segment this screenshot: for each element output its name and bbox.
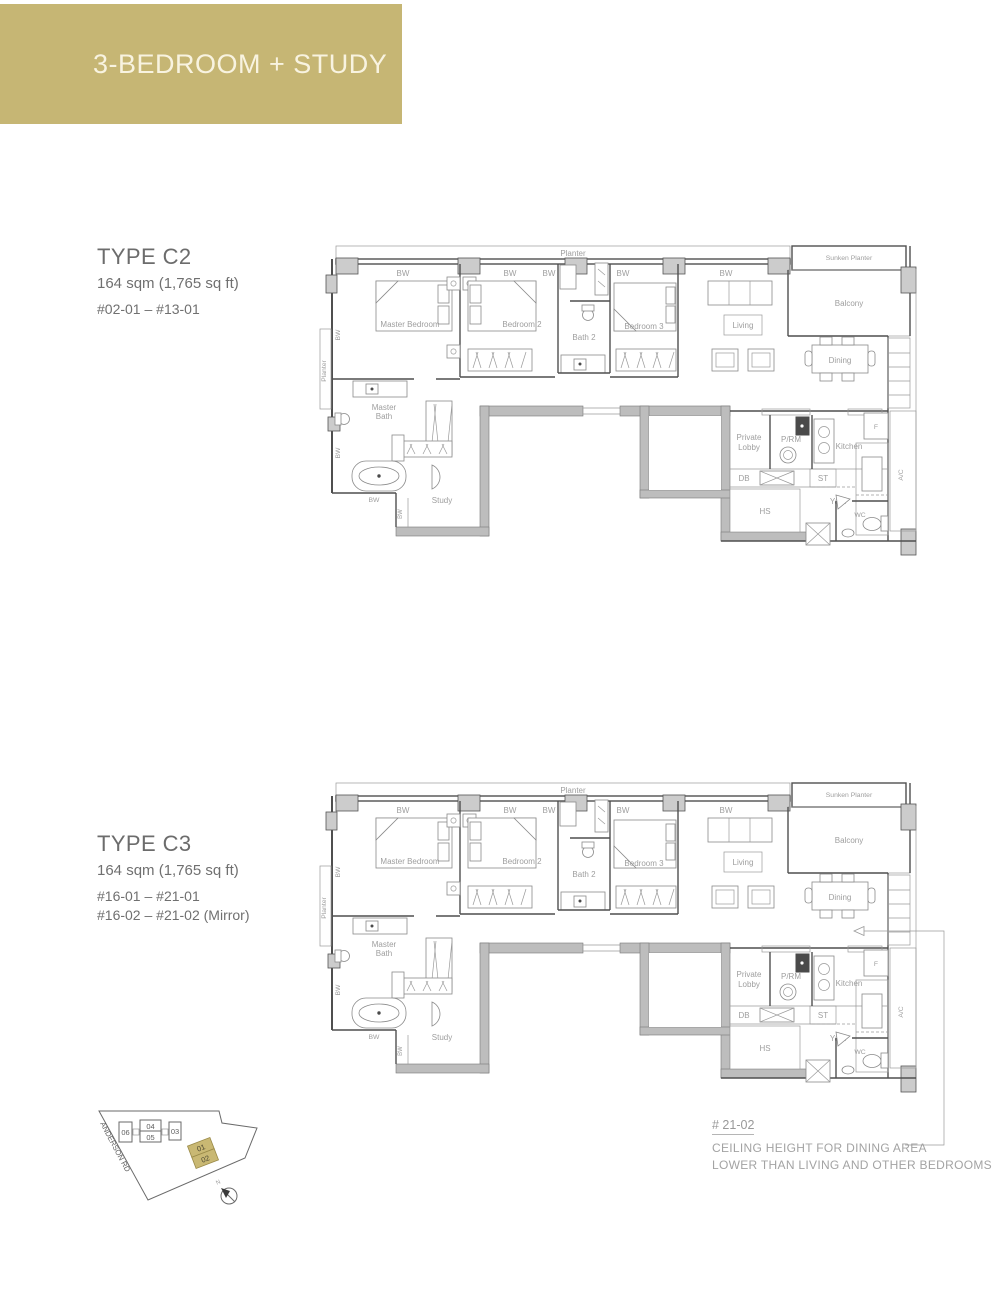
c2-label-bw-top-1: BW bbox=[397, 269, 410, 278]
type-c3-units-1: #16-01 – #21-01 bbox=[97, 888, 250, 904]
c3-column-top-5 bbox=[768, 795, 790, 811]
c2-wc-door bbox=[836, 495, 850, 509]
c2-window-band bbox=[888, 338, 910, 408]
floorplan-type-c3: PlanterBWBWBWBWBWSunken PlanterBalconyPl… bbox=[318, 780, 945, 1107]
keyplan-connector bbox=[133, 1129, 139, 1135]
c3-shape bbox=[868, 888, 875, 903]
c3-label-bw-top-1: BW bbox=[397, 806, 410, 815]
c2-label-bedroom-3: Bedroom 3 bbox=[624, 322, 664, 331]
c2-shape bbox=[666, 287, 675, 304]
c2-label-master-bath-2: Bath bbox=[376, 412, 392, 421]
c2-core-wall bbox=[396, 527, 489, 536]
c2-shape bbox=[447, 345, 460, 358]
c3-shape bbox=[595, 800, 608, 832]
c2-fixture bbox=[579, 363, 581, 365]
c3-label-st: ST bbox=[818, 1011, 828, 1020]
c2-shape bbox=[805, 351, 812, 366]
c2-shape bbox=[820, 337, 832, 345]
keyplan-label-04: 04 bbox=[146, 1122, 154, 1131]
c3-shape bbox=[438, 843, 449, 861]
c3-label-bw-top-4: BW bbox=[617, 806, 630, 815]
c2-shape bbox=[470, 285, 481, 303]
c3-shape bbox=[862, 994, 882, 1028]
c3-shape bbox=[447, 814, 460, 827]
c2-shape bbox=[560, 265, 576, 289]
type-c2-info: TYPE C2 164 sqm (1,765 sq ft) #02-01 – #… bbox=[97, 244, 239, 317]
c2-label-bw-left-2: BW bbox=[335, 447, 342, 459]
c2-column-top-2 bbox=[458, 258, 480, 274]
c3-window-band bbox=[888, 875, 910, 945]
c3-label-master-bath: Master bbox=[372, 940, 397, 949]
c3-label-hs: HS bbox=[759, 1044, 770, 1053]
c2-shape bbox=[326, 275, 337, 293]
c3-label-dining: Dining bbox=[829, 893, 852, 902]
note-line-1: CEILING HEIGHT FOR DINING AREA bbox=[712, 1141, 992, 1155]
c3-wc-door bbox=[836, 1032, 850, 1046]
c2-label-bw-left-1: BW bbox=[335, 329, 342, 341]
c2-column-right-bottom bbox=[901, 529, 916, 555]
c3-label-planter-top: Planter bbox=[560, 786, 586, 795]
c3-shape bbox=[666, 843, 675, 860]
category-title: 3-BEDROOM + STUDY bbox=[0, 49, 387, 80]
c3-label-master-bedroom: Master Bedroom bbox=[380, 857, 439, 866]
c3-label-wc: WC bbox=[854, 1049, 865, 1056]
type-c3-name: TYPE C3 bbox=[97, 831, 250, 857]
c2-wc-basin bbox=[842, 529, 854, 537]
c3-shape bbox=[582, 842, 594, 848]
c2-label-sunken-planter: Sunken Planter bbox=[826, 255, 873, 262]
c2-washer bbox=[780, 447, 796, 463]
type-c3-units-2: #16-02 – #21-02 (Mirror) bbox=[97, 907, 250, 923]
keyplan-label-06: 06 bbox=[121, 1128, 129, 1137]
c2-shape bbox=[868, 351, 875, 366]
c2-shape bbox=[820, 373, 832, 381]
category-banner: 3-BEDROOM + STUDY bbox=[0, 4, 402, 124]
c3-shape bbox=[666, 824, 675, 841]
c2-fixture bbox=[800, 424, 803, 427]
c3-core-wall bbox=[480, 943, 583, 953]
c2-fixture bbox=[378, 475, 380, 477]
c2-label-fridge: F bbox=[874, 424, 878, 431]
c2-label-bedroom-2: Bedroom 2 bbox=[502, 320, 542, 329]
c2-column-top-5 bbox=[768, 258, 790, 274]
c2-label-planter-top: Planter bbox=[560, 249, 586, 258]
c2-fixture bbox=[371, 388, 373, 390]
site-key-plan: 060405030102ANDERSON RDN bbox=[80, 1090, 270, 1235]
c2-void bbox=[649, 416, 721, 490]
c2-label-master-bath: Master bbox=[372, 403, 397, 412]
c3-shape bbox=[470, 822, 481, 840]
type-c2-area: 164 sqm (1,765 sq ft) bbox=[97, 275, 239, 292]
c3-shape bbox=[842, 874, 854, 882]
c3-label-db: DB bbox=[738, 1011, 749, 1020]
c3-core-wall bbox=[721, 943, 730, 1078]
c3-label-bw-left-2: BW bbox=[335, 984, 342, 996]
type-c2-units: #02-01 – #13-01 bbox=[97, 301, 239, 317]
c2-label-bw-tub: BW bbox=[369, 497, 381, 504]
c2-vanity bbox=[353, 381, 407, 397]
c2-label-bw-top-4: BW bbox=[617, 269, 630, 278]
c3-vanity bbox=[353, 918, 407, 934]
c3-shape bbox=[881, 1053, 888, 1068]
keyplan-label-03: 03 bbox=[171, 1127, 179, 1136]
c2-core-wall bbox=[721, 406, 730, 541]
c2-label-bath-2: Bath 2 bbox=[572, 333, 596, 342]
c3-washer bbox=[780, 984, 796, 1000]
c3-core-wall bbox=[620, 943, 730, 953]
c2-sofa bbox=[708, 281, 772, 305]
c3-label-bw-top-2: BW bbox=[504, 806, 517, 815]
c3-shape bbox=[447, 882, 460, 895]
c3-label-private-lobby-2: Lobby bbox=[738, 980, 760, 989]
c3-label-bw-left-1: BW bbox=[335, 866, 342, 878]
c3-core-wall bbox=[640, 1027, 730, 1035]
c2-column-top-4 bbox=[663, 258, 685, 274]
c3-shape bbox=[335, 950, 341, 962]
c3-column-top-1 bbox=[336, 795, 358, 811]
c3-study-chair bbox=[432, 1002, 440, 1026]
c2-column-top-1 bbox=[336, 258, 358, 274]
c2-label-kitchen: Kitchen bbox=[836, 442, 863, 451]
c2-label-db: DB bbox=[738, 474, 749, 483]
c2-shape bbox=[335, 413, 341, 425]
c3-core-wall bbox=[480, 943, 489, 1073]
c2-label-dining: Dining bbox=[829, 356, 852, 365]
c3-label-fridge: F bbox=[874, 961, 878, 968]
c3-label-bw-tub: BW bbox=[369, 1034, 381, 1041]
c3-shape bbox=[560, 802, 576, 826]
c2-shape bbox=[666, 306, 675, 323]
c2-wc-toilet bbox=[863, 518, 881, 531]
c3-stove bbox=[814, 956, 834, 1000]
c3-shape bbox=[842, 910, 854, 918]
c3-shape bbox=[805, 888, 812, 903]
type-c3-info: TYPE C3 164 sqm (1,765 sq ft) #16-01 – #… bbox=[97, 831, 250, 923]
c2-shape bbox=[447, 277, 460, 290]
type-c2-name: TYPE C2 bbox=[97, 244, 239, 270]
c2-shape bbox=[595, 263, 608, 295]
c2-shape bbox=[470, 306, 481, 324]
c3-label-balcony: Balcony bbox=[835, 836, 863, 845]
keyplan-north-arrow bbox=[221, 1188, 230, 1198]
note-unit-number: # 21-02 bbox=[712, 1118, 754, 1135]
c3-shape bbox=[470, 843, 481, 861]
c3-shape bbox=[392, 972, 404, 998]
c2-label-private-lobby: Private bbox=[737, 433, 762, 442]
c2-shape bbox=[392, 435, 404, 461]
c3-label-living: Living bbox=[733, 858, 754, 867]
c3-shape bbox=[762, 946, 810, 952]
type-c3-area: 164 sqm (1,765 sq ft) bbox=[97, 862, 250, 879]
c3-label-study: Study bbox=[432, 1033, 452, 1042]
c3-fixture bbox=[800, 961, 803, 964]
keyplan-connector bbox=[162, 1129, 168, 1135]
c3-column-top-4 bbox=[663, 795, 685, 811]
c3-shape bbox=[326, 812, 337, 830]
c2-label-bw-top-2: BW bbox=[504, 269, 517, 278]
c3-wc-basin bbox=[842, 1066, 854, 1074]
c2-study-chair bbox=[432, 465, 440, 489]
c2-shape bbox=[842, 373, 854, 381]
c2-label-wc: WC bbox=[854, 512, 865, 519]
c2-core-wall bbox=[620, 406, 730, 416]
c3-label-bw-study: BW bbox=[398, 1046, 404, 1056]
c2-label-prm: P/RM bbox=[781, 435, 801, 444]
c3-label-bw-top-5: BW bbox=[720, 806, 733, 815]
c3-label-planter-left: Planter bbox=[321, 897, 328, 919]
c3-shape bbox=[820, 874, 832, 882]
c2-shape bbox=[438, 306, 449, 324]
note-line-2: LOWER THAN LIVING AND OTHER BEDROOMS bbox=[712, 1158, 992, 1172]
c2-wardrobe-3 bbox=[616, 349, 676, 371]
c3-core-wall bbox=[640, 943, 649, 1035]
c3-fixture bbox=[579, 900, 581, 902]
c3-wardrobe-3 bbox=[616, 886, 676, 908]
c2-shape bbox=[842, 337, 854, 345]
c2-label-bw-study: BW bbox=[398, 509, 404, 519]
c3-column-right-bottom bbox=[901, 1066, 916, 1092]
c3-label-prm: P/RM bbox=[781, 972, 801, 981]
c2-shape bbox=[881, 516, 888, 531]
floorplan-type-c2: PlanterBWBWBWBWBWSunken PlanterBalconyPl… bbox=[318, 243, 945, 570]
floorplan-page: 3-BEDROOM + STUDY TYPE C2 164 sqm (1,765… bbox=[0, 0, 1000, 1308]
c2-top-wall bbox=[336, 259, 790, 264]
c2-label-ac: A/C bbox=[898, 469, 905, 480]
ceiling-height-note: # 21-02 CEILING HEIGHT FOR DINING AREA L… bbox=[712, 1116, 992, 1172]
c2-label-private-lobby-2: Lobby bbox=[738, 443, 760, 452]
c2-shape bbox=[862, 457, 882, 491]
c2-label-living: Living bbox=[733, 321, 754, 330]
c3-fixture bbox=[371, 925, 373, 927]
c2-label-bw-top-5: BW bbox=[720, 269, 733, 278]
c3-label-bath-2: Bath 2 bbox=[572, 870, 596, 879]
c2-core-wall bbox=[480, 406, 489, 536]
c3-label-master-bath-2: Bath bbox=[376, 949, 392, 958]
c2-label-master-bedroom: Master Bedroom bbox=[380, 320, 439, 329]
c3-core-wall bbox=[396, 1064, 489, 1073]
c2-core-wall bbox=[480, 406, 583, 416]
keyplan-highlighted-stack: 0102 bbox=[187, 1137, 218, 1168]
c2-stove bbox=[814, 419, 834, 463]
c3-column-right-top bbox=[901, 804, 916, 830]
c2-label-st: ST bbox=[818, 474, 828, 483]
c3-shape bbox=[820, 910, 832, 918]
c2-column-right-top bbox=[901, 267, 916, 293]
c3-label-private-lobby: Private bbox=[737, 970, 762, 979]
c2-core-wall bbox=[640, 490, 730, 498]
c3-wc-toilet bbox=[863, 1055, 881, 1068]
c2-shape bbox=[582, 305, 594, 311]
c3-label-sunken-planter: Sunken Planter bbox=[826, 792, 873, 799]
c2-label-study: Study bbox=[432, 496, 452, 505]
keyplan-north-label: N bbox=[215, 1179, 221, 1186]
c3-label-bedroom-2: Bedroom 2 bbox=[502, 857, 542, 866]
keyplan-label-05: 05 bbox=[146, 1133, 154, 1142]
c3-top-wall bbox=[336, 796, 790, 801]
c2-label-bw-top-3: BW bbox=[543, 269, 556, 278]
c3-column-top-2 bbox=[458, 795, 480, 811]
c2-label-balcony: Balcony bbox=[835, 299, 863, 308]
c2-shape bbox=[762, 409, 810, 415]
c2-label-hs: HS bbox=[759, 507, 770, 516]
c3-label-bedroom-3: Bedroom 3 bbox=[624, 859, 664, 868]
c3-label-ac: A/C bbox=[898, 1006, 905, 1017]
c3-sofa bbox=[708, 818, 772, 842]
c3-void bbox=[649, 953, 721, 1027]
c2-label-planter-left: Planter bbox=[321, 360, 328, 382]
c3-fixture bbox=[378, 1012, 380, 1014]
c3-label-bw-top-3: BW bbox=[543, 806, 556, 815]
c2-core-wall bbox=[640, 406, 649, 498]
